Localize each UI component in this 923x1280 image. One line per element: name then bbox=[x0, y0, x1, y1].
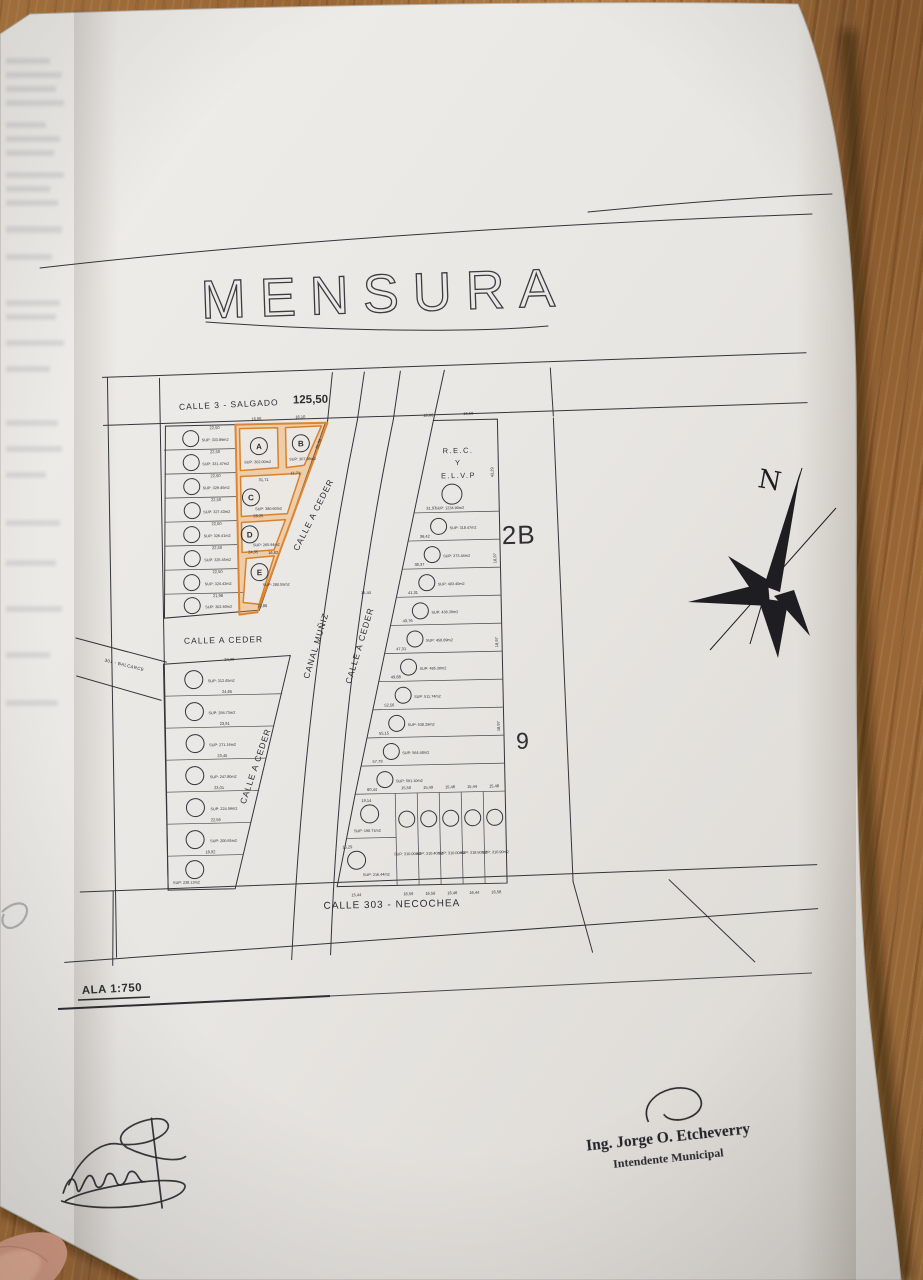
photo-vignette bbox=[0, 0, 923, 1280]
survey-plan-photo: MENSURA CALLE 3 - SALGADO bbox=[0, 0, 923, 1280]
photo-scene: MENSURA CALLE 3 - SALGADO bbox=[0, 0, 923, 1280]
